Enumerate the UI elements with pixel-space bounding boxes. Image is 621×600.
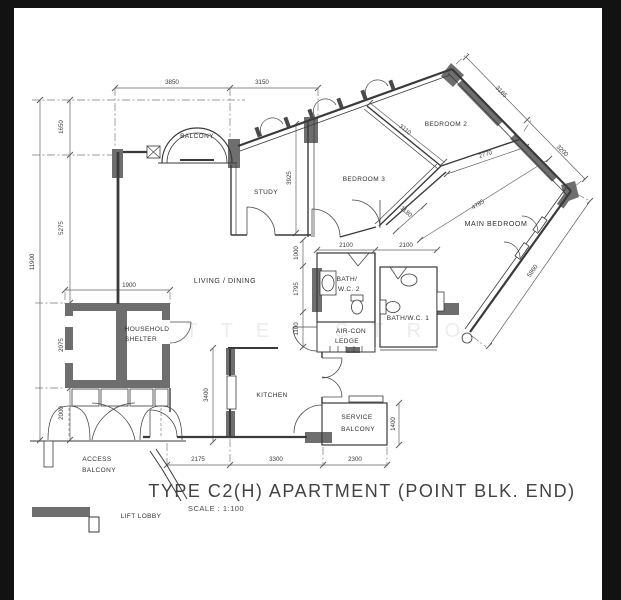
room-label-living-dining: LIVING / DINING xyxy=(194,278,256,285)
dim-2300: 2300 xyxy=(348,456,362,463)
sink xyxy=(322,275,334,291)
dim-2075: 2075 xyxy=(58,338,65,352)
dim-3400: 3400 xyxy=(203,388,210,402)
room-label-household-2: SHELTER xyxy=(125,336,157,343)
room-label-lift-lobby: LIFT LOBBY xyxy=(121,513,162,520)
room-label-kitchen: KITCHEN xyxy=(256,392,287,399)
window-sill xyxy=(349,396,383,402)
dim-2100-a: 2100 xyxy=(339,242,353,249)
dim-1100: 1100 xyxy=(293,322,300,336)
plan-scale: SCALE : 1:100 xyxy=(188,504,244,513)
dim-1650: 1650 xyxy=(58,120,65,134)
lift-lobby-wall xyxy=(32,507,90,517)
dim-3300: 3300 xyxy=(269,456,283,463)
wall-pillar xyxy=(228,139,240,168)
room-label-service-2: BALCONY xyxy=(341,426,375,433)
toilet xyxy=(352,300,363,314)
dim-3850: 3850 xyxy=(165,79,179,86)
shelter-vent xyxy=(65,350,73,363)
dim-1795: 1795 xyxy=(293,282,300,296)
room-label-bedroom2: BEDROOM 2 xyxy=(425,121,468,128)
screenshot-root: T T E S T R O xyxy=(0,0,621,600)
dim-1900: 1900 xyxy=(122,282,136,289)
room-label-main-bedroom: MAIN BEDROOM xyxy=(465,221,528,228)
room-label-balcony: BALCONY xyxy=(180,133,214,140)
room-label-household-1: HOUSEHOLD xyxy=(125,326,170,333)
floor-plan-drawing: T T E S T R O xyxy=(0,0,621,600)
dim-3925: 3925 xyxy=(286,171,293,185)
dim-5275: 5275 xyxy=(58,221,65,235)
bath1-window xyxy=(437,292,444,311)
window-panel xyxy=(155,389,168,406)
shelter-vent xyxy=(65,316,73,327)
balcony-stub xyxy=(44,441,53,467)
dim-2100-b: 2100 xyxy=(399,242,413,249)
dim-3150: 3150 xyxy=(255,79,269,86)
shelter-room-left xyxy=(73,311,116,380)
plan-title: TYPE C2(H) APARTMENT (POINT BLK. END) xyxy=(148,481,575,501)
toilet xyxy=(386,302,400,313)
room-label-aircon-2: LEDGE xyxy=(335,338,359,345)
room-label-bedroom3: BEDROOM 3 xyxy=(343,176,386,183)
dim-2175: 2175 xyxy=(191,456,205,463)
room-label-access-2: BALCONY xyxy=(82,467,116,474)
watermark-left: T T E xyxy=(186,320,279,342)
window-panel xyxy=(101,389,128,406)
room-label-service-1: SERVICE xyxy=(341,414,372,421)
dim-1400: 1400 xyxy=(390,417,397,431)
dim-2000: 2000 xyxy=(58,406,65,420)
shelter-room-right xyxy=(127,311,162,380)
room-label-study: STUDY xyxy=(254,189,278,196)
room-label-bath2-1: BATH/ xyxy=(337,276,358,283)
sink xyxy=(401,274,417,286)
dim-1000: 1000 xyxy=(293,246,300,260)
toilet-tank xyxy=(380,300,386,314)
room-label-access-1: ACCESS xyxy=(82,456,111,463)
wall-block xyxy=(305,432,332,443)
kitchen-window xyxy=(227,376,236,409)
room-label-aircon-1: AIR-CON xyxy=(336,328,366,335)
room-label-bath2-2: W.C. 2 xyxy=(338,286,360,293)
dim-11900: 11900 xyxy=(29,253,36,270)
room-label-bath1: BATH/W.C. 1 xyxy=(387,315,430,322)
